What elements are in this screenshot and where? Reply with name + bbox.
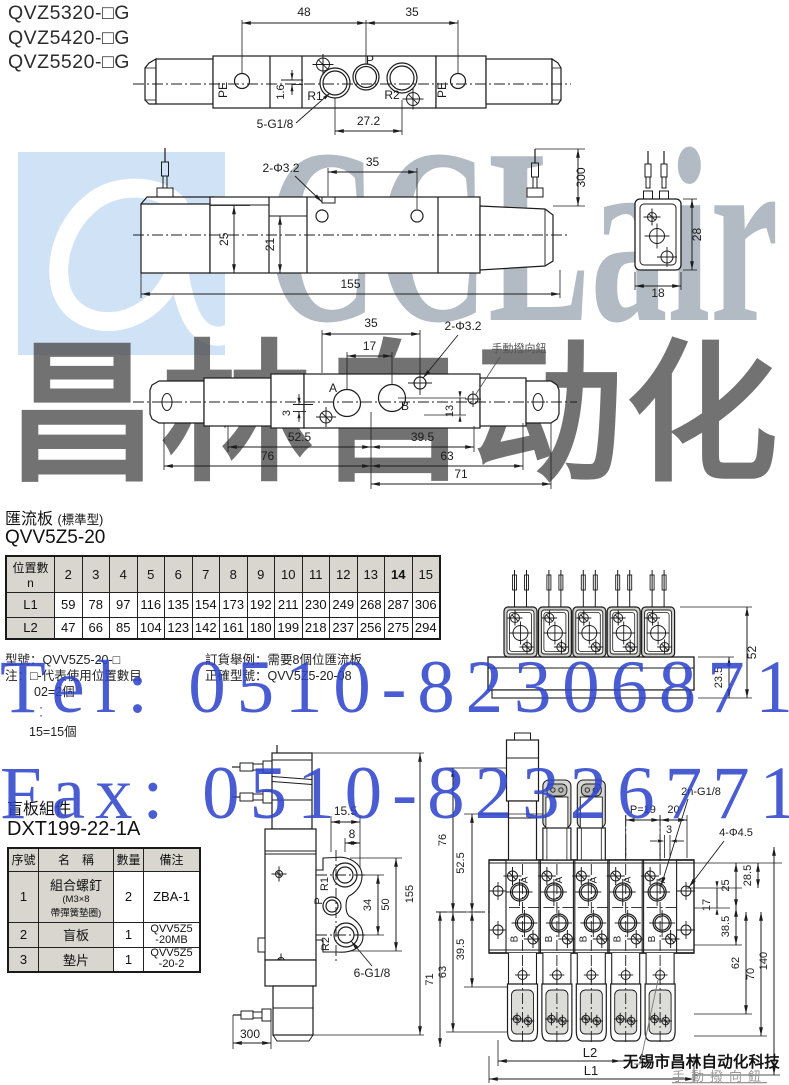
svg-text:71: 71 — [454, 467, 468, 481]
svg-text:PE: PE — [216, 82, 230, 98]
svg-text:140: 140 — [758, 952, 770, 970]
svg-text:35: 35 — [364, 316, 378, 330]
svg-text:17: 17 — [363, 339, 377, 353]
svg-text:28: 28 — [690, 228, 704, 242]
svg-text:300: 300 — [574, 167, 588, 187]
svg-text:25: 25 — [720, 879, 732, 891]
svg-text:P: P — [313, 897, 325, 904]
svg-text:B: B — [578, 935, 589, 942]
svg-text:35: 35 — [366, 155, 380, 169]
svg-text:25: 25 — [217, 232, 231, 246]
svg-text:R1: R1 — [319, 877, 331, 891]
svg-text:A: A — [329, 381, 337, 395]
svg-text:手動撥向鈕: 手動撥向鈕 — [672, 1069, 767, 1084]
svg-text:A: A — [520, 876, 531, 883]
svg-text:13: 13 — [444, 405, 456, 417]
svg-text:B: B — [544, 935, 555, 942]
svg-text:P: P — [366, 53, 374, 67]
svg-text:17: 17 — [701, 899, 713, 911]
svg-text:50: 50 — [380, 898, 392, 910]
svg-text:A: A — [588, 876, 599, 883]
svg-text:34: 34 — [362, 899, 374, 911]
svg-text:A: A — [554, 876, 565, 883]
svg-text:52.5: 52.5 — [288, 430, 312, 444]
svg-text:A: A — [623, 876, 634, 883]
svg-text:B: B — [647, 935, 658, 942]
svg-text:B: B — [613, 935, 624, 942]
svg-text:B: B — [401, 399, 409, 413]
svg-text:6-G1/8: 6-G1/8 — [354, 966, 391, 980]
svg-text:5-G1/8: 5-G1/8 — [257, 117, 294, 131]
svg-text:39.5: 39.5 — [411, 430, 435, 444]
svg-text:70: 70 — [745, 968, 757, 980]
svg-text:R2: R2 — [384, 88, 400, 102]
svg-text:48: 48 — [297, 5, 311, 19]
svg-text:28.5: 28.5 — [742, 865, 754, 886]
svg-text:3: 3 — [281, 410, 293, 416]
svg-text:63: 63 — [440, 449, 454, 463]
svg-text:21: 21 — [263, 238, 277, 252]
svg-text:18: 18 — [651, 286, 665, 300]
svg-text:2-Φ3.2: 2-Φ3.2 — [263, 161, 300, 175]
svg-text:2-Φ3.2: 2-Φ3.2 — [445, 319, 482, 333]
svg-text:R2: R2 — [320, 937, 332, 951]
svg-text:300: 300 — [240, 1027, 260, 1041]
svg-text:39.5: 39.5 — [455, 939, 467, 960]
svg-text:B: B — [510, 935, 521, 942]
svg-text:63: 63 — [437, 966, 449, 978]
svg-text:L1: L1 — [584, 1063, 598, 1078]
svg-text:1.6: 1.6 — [275, 84, 287, 99]
svg-text:L2: L2 — [583, 1045, 597, 1060]
svg-text:76: 76 — [261, 449, 275, 463]
svg-text:62: 62 — [730, 957, 742, 969]
svg-text:71: 71 — [424, 973, 436, 985]
svg-text:手動撥向鈕: 手動撥向鈕 — [492, 341, 547, 355]
svg-text:35: 35 — [405, 5, 419, 19]
svg-text:155: 155 — [404, 885, 416, 903]
svg-text:52.5: 52.5 — [455, 852, 467, 873]
svg-text:27.2: 27.2 — [357, 114, 381, 128]
svg-text:38.5: 38.5 — [720, 916, 732, 937]
svg-text:155: 155 — [340, 277, 360, 291]
svg-text:PE: PE — [435, 82, 449, 98]
